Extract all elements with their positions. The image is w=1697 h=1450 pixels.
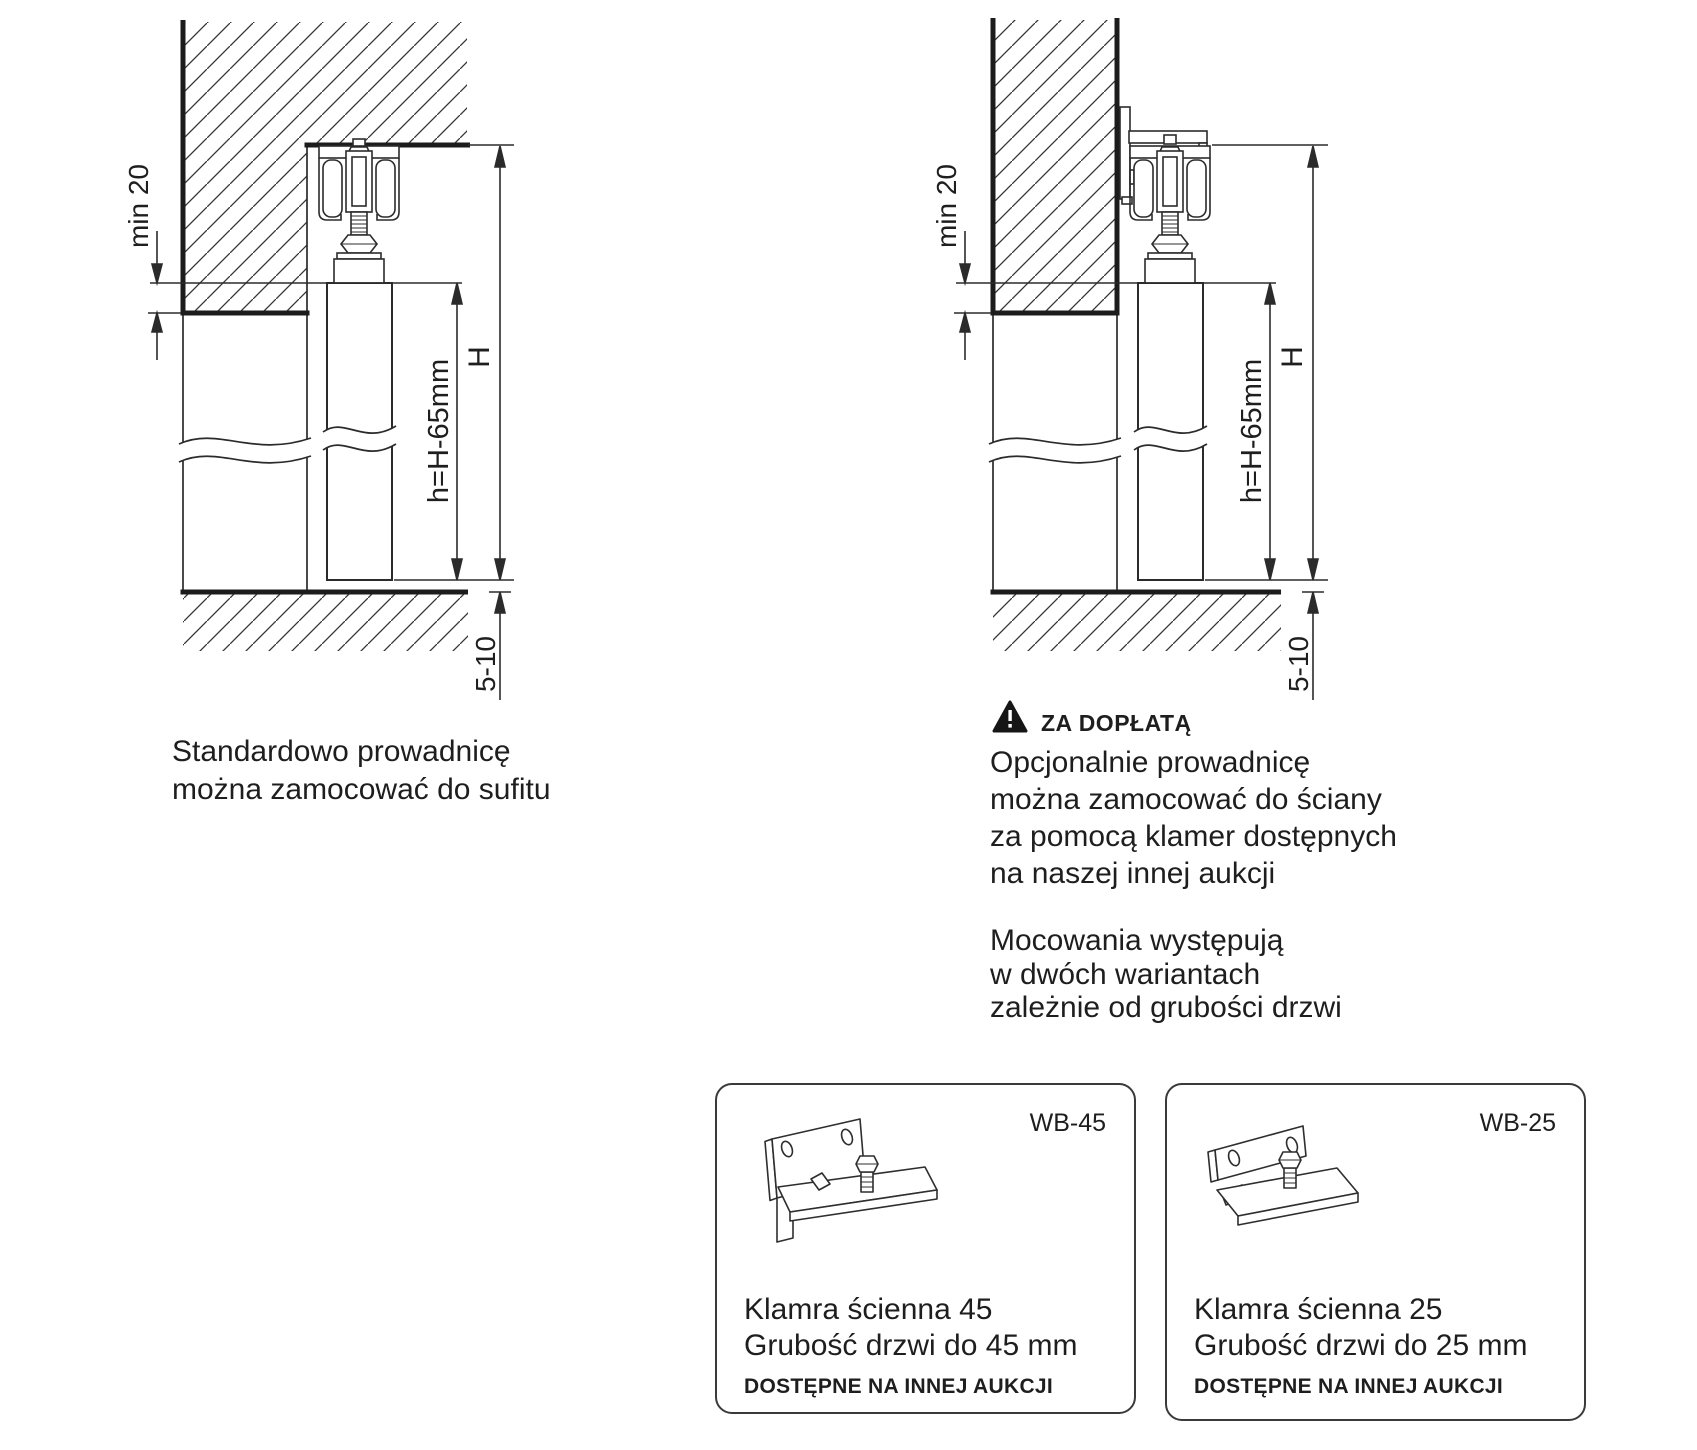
warning-triangle-icon	[992, 700, 1028, 739]
ceiling-mount-caption: Standardowo prowadnicę można zamocować d…	[172, 733, 551, 809]
roller-wheel-right	[1187, 160, 1206, 217]
dim-label-h: h=H-65mm	[1236, 359, 1268, 503]
floor-hatch	[993, 594, 1281, 651]
break-wave-wall	[989, 438, 1121, 463]
caption-line: można zamocować do sufitu	[172, 771, 551, 809]
bracket-subtitle: Grubość drzwi do 25 mm	[1194, 1328, 1527, 1364]
caption-line: za pomocą klamer dostępnych	[990, 818, 1397, 855]
track-and-roller	[319, 139, 399, 283]
bracket-card-wb25: WB-25 Klamra ścienna 25 Grubość drzwi do…	[1165, 1083, 1586, 1421]
washer-plate	[337, 253, 381, 259]
roller-hanger-slot	[352, 157, 366, 206]
product-code: WB-45	[1030, 1109, 1106, 1138]
installation-instruction-sheet: min 20 H h=H-65mm 5-10	[0, 0, 1697, 1450]
wall-hatch	[993, 20, 1117, 313]
card-text: Klamra ścienna 25 Grubość drzwi do 25 mm…	[1194, 1292, 1527, 1399]
product-code: WB-25	[1480, 1109, 1556, 1138]
bracket-footnote: DOSTĘPNE NA INNEJ AUKCJI	[744, 1375, 1077, 1399]
roller-wheel-right	[376, 160, 395, 217]
roller-wheel-left	[1134, 160, 1153, 217]
washer-plate	[1148, 253, 1192, 259]
dim-label-gap: 5-10	[470, 636, 501, 692]
track-and-roller	[1130, 135, 1210, 283]
card-text: Klamra ścienna 45 Grubość drzwi do 45 mm…	[744, 1292, 1077, 1399]
dim-label-gap: 5-10	[1283, 636, 1314, 692]
bracket-card-wb45: WB-45 Klamra ścienna 45 Grubość drzwi do…	[715, 1083, 1136, 1414]
variants-note: Mocowania występują w dwóch wariantach z…	[990, 924, 1342, 1025]
roller-hanger-slot	[1163, 157, 1177, 206]
dim-label-h: h=H-65mm	[423, 359, 455, 503]
caption-line: Opcjonalnie prowadnicę	[990, 744, 1397, 781]
caption-line: na naszej innej aukcji	[990, 855, 1397, 892]
dim-label-H: H	[463, 346, 496, 368]
bracket-title: Klamra ścienna 45	[744, 1292, 1077, 1328]
wall-bracket-45-drawing	[757, 1113, 1007, 1263]
wall-bracket-25-drawing	[1205, 1115, 1435, 1245]
diagram-wall-mount: min 20 H h=H-65mm 5-10	[931, 18, 1328, 700]
dim-label-min20: min 20	[123, 164, 154, 248]
track-screw	[1164, 135, 1176, 144]
bracket-subtitle: Grubość drzwi do 45 mm	[744, 1328, 1077, 1364]
caption-line: Mocowania występują	[990, 924, 1342, 958]
wall-mount-caption: Opcjonalnie prowadnicę można zamocować d…	[990, 744, 1397, 892]
door-clamp-block	[334, 259, 384, 283]
dim-label-H: H	[1276, 346, 1309, 368]
caption-line: można zamocować do ściany	[990, 781, 1397, 818]
caption-line: zależnie od grubości drzwi	[990, 991, 1342, 1025]
surcharge-warning: ZA DOPŁATĄ	[992, 700, 1192, 739]
roller-wheel-left	[323, 160, 342, 217]
dim-label-min20: min 20	[931, 164, 962, 248]
floor-hatch	[183, 594, 468, 651]
diagram-ceiling-mount: min 20 H h=H-65mm 5-10	[123, 20, 514, 700]
door-clamp-block	[1145, 259, 1195, 283]
caption-line: w dwóch wariantach	[990, 958, 1342, 992]
surcharge-badge: ZA DOPŁATĄ	[1041, 710, 1192, 739]
caption-line: Standardowo prowadnicę	[172, 733, 551, 771]
bracket-footnote: DOSTĘPNE NA INNEJ AUKCJI	[1194, 1375, 1527, 1399]
bracket-title: Klamra ścienna 25	[1194, 1292, 1527, 1328]
break-wave-wall	[179, 438, 311, 463]
